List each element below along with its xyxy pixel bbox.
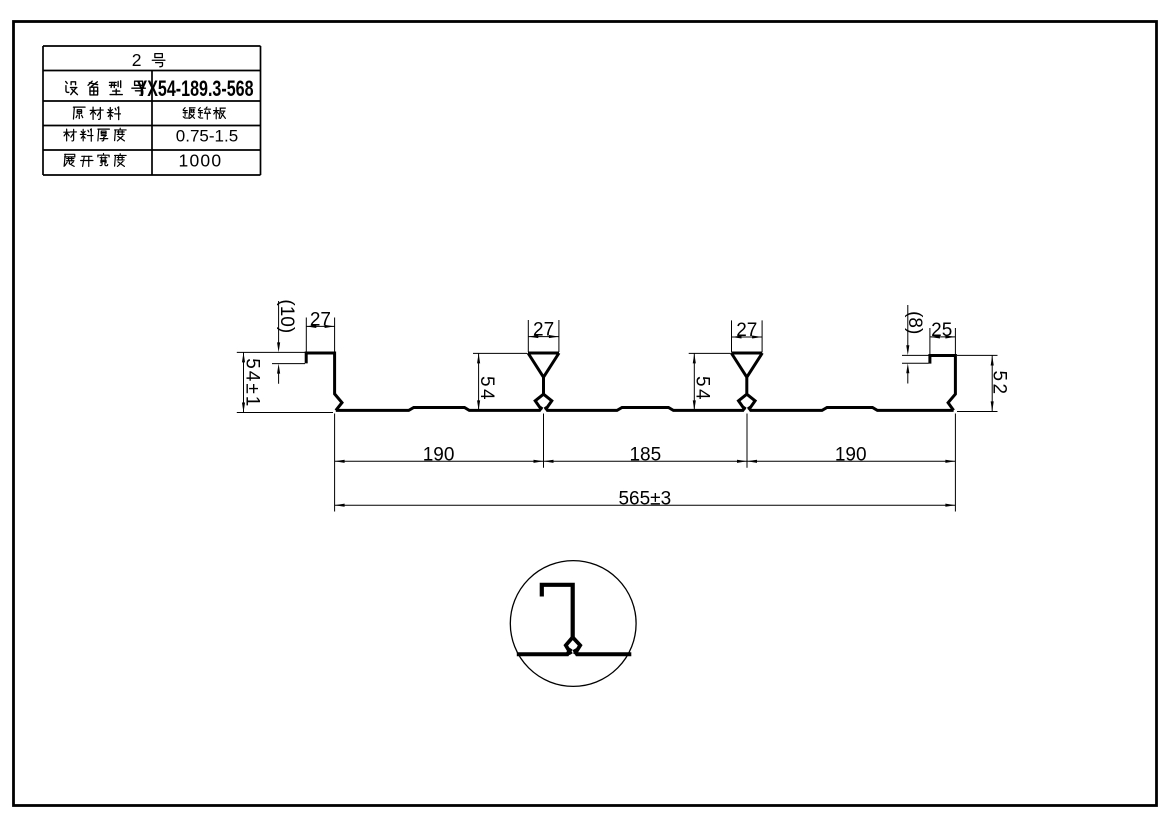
svg-text:0.75-1.5: 0.75-1.5	[176, 127, 238, 146]
svg-text:1000: 1000	[179, 151, 223, 171]
svg-text:185: 185	[629, 444, 661, 465]
svg-text:190: 190	[423, 444, 455, 465]
svg-text:(8): (8)	[904, 311, 925, 334]
svg-text:190: 190	[835, 444, 867, 465]
svg-text:54: 54	[476, 376, 497, 402]
svg-text:54: 54	[692, 376, 713, 402]
svg-text:YX54-189.3-568: YX54-189.3-568	[137, 76, 254, 101]
svg-text:54±1: 54±1	[241, 358, 262, 408]
svg-text:2: 2	[132, 50, 142, 70]
svg-text:52: 52	[988, 371, 1009, 397]
svg-text:565±3: 565±3	[618, 488, 671, 509]
svg-text:(10): (10)	[276, 299, 297, 333]
